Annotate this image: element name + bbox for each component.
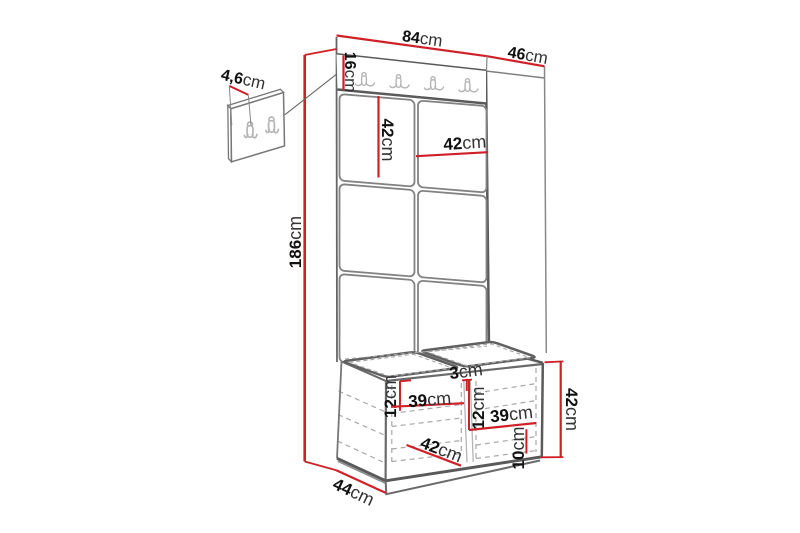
svg-text:10cm: 10cm (508, 427, 528, 470)
svg-text:16cm: 16cm (341, 52, 360, 92)
svg-text:12cm: 12cm (468, 387, 488, 430)
svg-text:12cm: 12cm (380, 375, 400, 418)
svg-text:42cm: 42cm (562, 388, 582, 431)
svg-text:39cm: 39cm (407, 388, 451, 411)
svg-text:42cm: 42cm (378, 119, 398, 162)
svg-text:186cm: 186cm (285, 216, 305, 268)
svg-text:42cm: 42cm (443, 132, 487, 155)
